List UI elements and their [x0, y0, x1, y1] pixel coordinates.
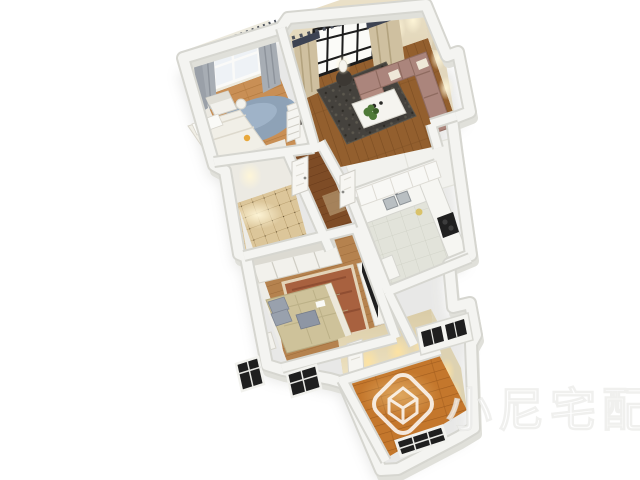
bedside-table	[236, 99, 246, 109]
bathroom-spotlight-glow	[238, 162, 262, 190]
floorplan-svg: 小尼宅配	[0, 0, 640, 480]
burner-2	[448, 225, 453, 230]
table-decor-2	[379, 101, 383, 105]
door-knob-west	[304, 177, 307, 180]
floorplan-render-canvas: 小尼宅配	[0, 0, 640, 480]
watermark-text: 小尼宅配	[446, 383, 640, 437]
door-knob-east	[342, 191, 345, 194]
floor-lamp-shade	[339, 60, 347, 72]
master-sw-window-1	[236, 357, 264, 391]
hallway-door-west	[292, 156, 308, 196]
burner-1	[442, 219, 447, 224]
starfish-decor	[244, 135, 250, 141]
kitchen-decor-bowl	[416, 209, 423, 216]
